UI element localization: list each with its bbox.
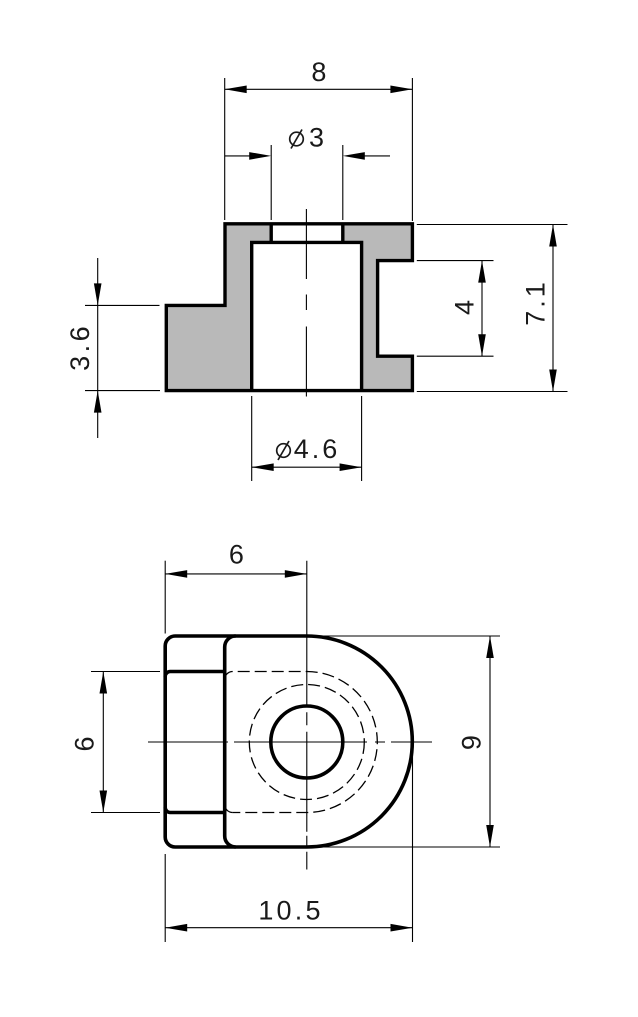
svg-text:4: 4 bbox=[450, 300, 480, 315]
svg-text:7.1: 7.1 bbox=[521, 279, 551, 326]
svg-text:10.5: 10.5 bbox=[258, 896, 323, 926]
svg-text:9: 9 bbox=[457, 735, 487, 750]
svg-text:3.6: 3.6 bbox=[65, 323, 95, 371]
svg-text:3: 3 bbox=[309, 123, 324, 153]
svg-text:6: 6 bbox=[70, 736, 100, 751]
svg-text:6: 6 bbox=[229, 540, 244, 570]
svg-text:4.6: 4.6 bbox=[294, 434, 341, 464]
svg-text:8: 8 bbox=[311, 57, 326, 87]
